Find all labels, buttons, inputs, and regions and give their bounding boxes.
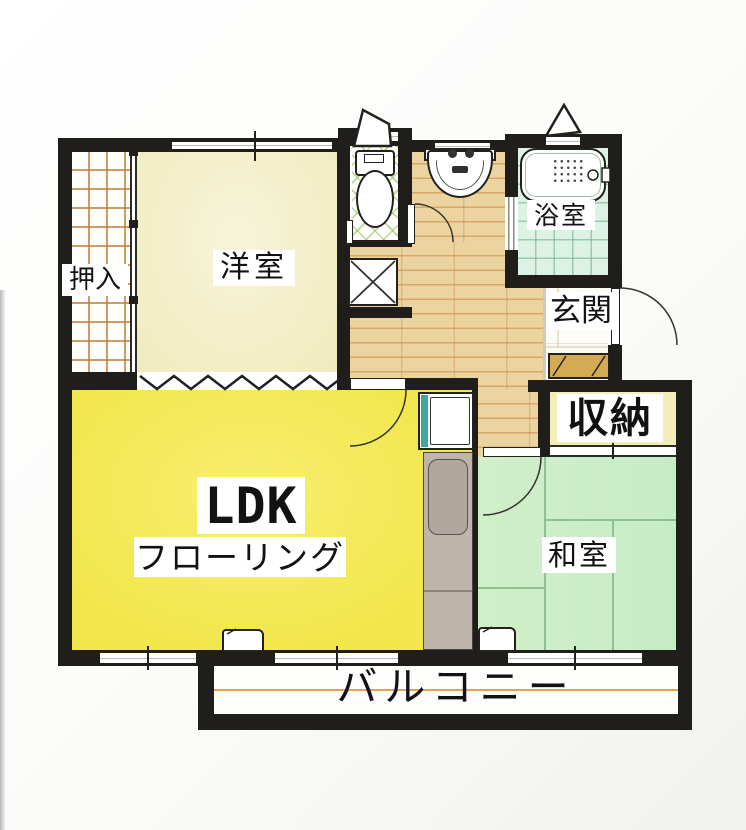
kitchen-counter-top: [428, 459, 468, 535]
wall-segment: [343, 307, 412, 318]
bath-vent-window: [546, 105, 580, 136]
wall-segment: [676, 380, 692, 666]
wall-segment: [505, 250, 518, 275]
wall-segment: [505, 275, 622, 288]
faucet-knob: [465, 149, 474, 158]
washroom-door-leaf: [407, 204, 415, 244]
kitchen-counter-seam: [424, 590, 472, 592]
door-track-stop: [129, 220, 138, 228]
room-label-oshiire: 押入: [62, 264, 128, 296]
window-yoshitsu: [172, 140, 332, 151]
pipe-space: [348, 258, 398, 306]
partition-opening: [137, 372, 345, 390]
floor-plan-page: 押入 洋室 浴室 玄関 収納 LDK フローリング 和室 バルコニー: [0, 0, 746, 830]
room-label-yoshitsu: 洋室: [213, 250, 295, 286]
window-toilet: [356, 130, 398, 143]
wall-segment: [341, 318, 346, 390]
basin-drain: [452, 166, 468, 173]
door-track-stop: [129, 296, 138, 304]
wall-segment: [58, 372, 137, 390]
room-label-bath: 浴室: [527, 200, 595, 230]
toilet-flush-button: [364, 154, 384, 163]
oshiire-sliding-door: [130, 152, 137, 378]
washitsu-door-leaf: [483, 447, 541, 457]
toilet-bowl: [356, 170, 394, 228]
window-ldk-west: [100, 651, 196, 665]
shunou-sliding-door: [550, 445, 676, 457]
bath-door: [505, 197, 518, 250]
balcony-wall: [678, 645, 692, 730]
room-label-balcony: バルコニー: [325, 663, 587, 711]
room-label-ldk: LDK: [197, 477, 305, 534]
wall-segment: [505, 134, 518, 197]
shoe-cabinet: [548, 353, 610, 379]
balcony-wall: [198, 714, 692, 730]
air-conditioner-unit: [478, 627, 516, 652]
wall-segment: [406, 378, 478, 390]
scan-artifact: [0, 290, 6, 830]
bathtub-dots: [552, 158, 586, 186]
faucet-knob: [448, 149, 457, 158]
wall-segment: [608, 134, 622, 288]
room-label-genkan: 玄関: [546, 292, 616, 330]
wall-segment: [58, 138, 72, 666]
kitchen-sink-edge: [421, 395, 428, 447]
toilet-paper-holder: [346, 220, 353, 244]
front-door-arc: [620, 288, 677, 345]
room-sublabel-ldk-flooring: フローリング: [134, 537, 346, 577]
door-track-stop: [129, 148, 138, 156]
window-bath: [546, 135, 580, 147]
air-conditioner-unit: [222, 629, 264, 652]
room-label-shunou: 収納: [557, 394, 663, 442]
room-label-washitsu: 和室: [542, 537, 616, 573]
kitchen-sink-basin: [430, 397, 470, 445]
ldk-door-leaf: [350, 378, 406, 390]
wall-segment: [528, 380, 676, 392]
